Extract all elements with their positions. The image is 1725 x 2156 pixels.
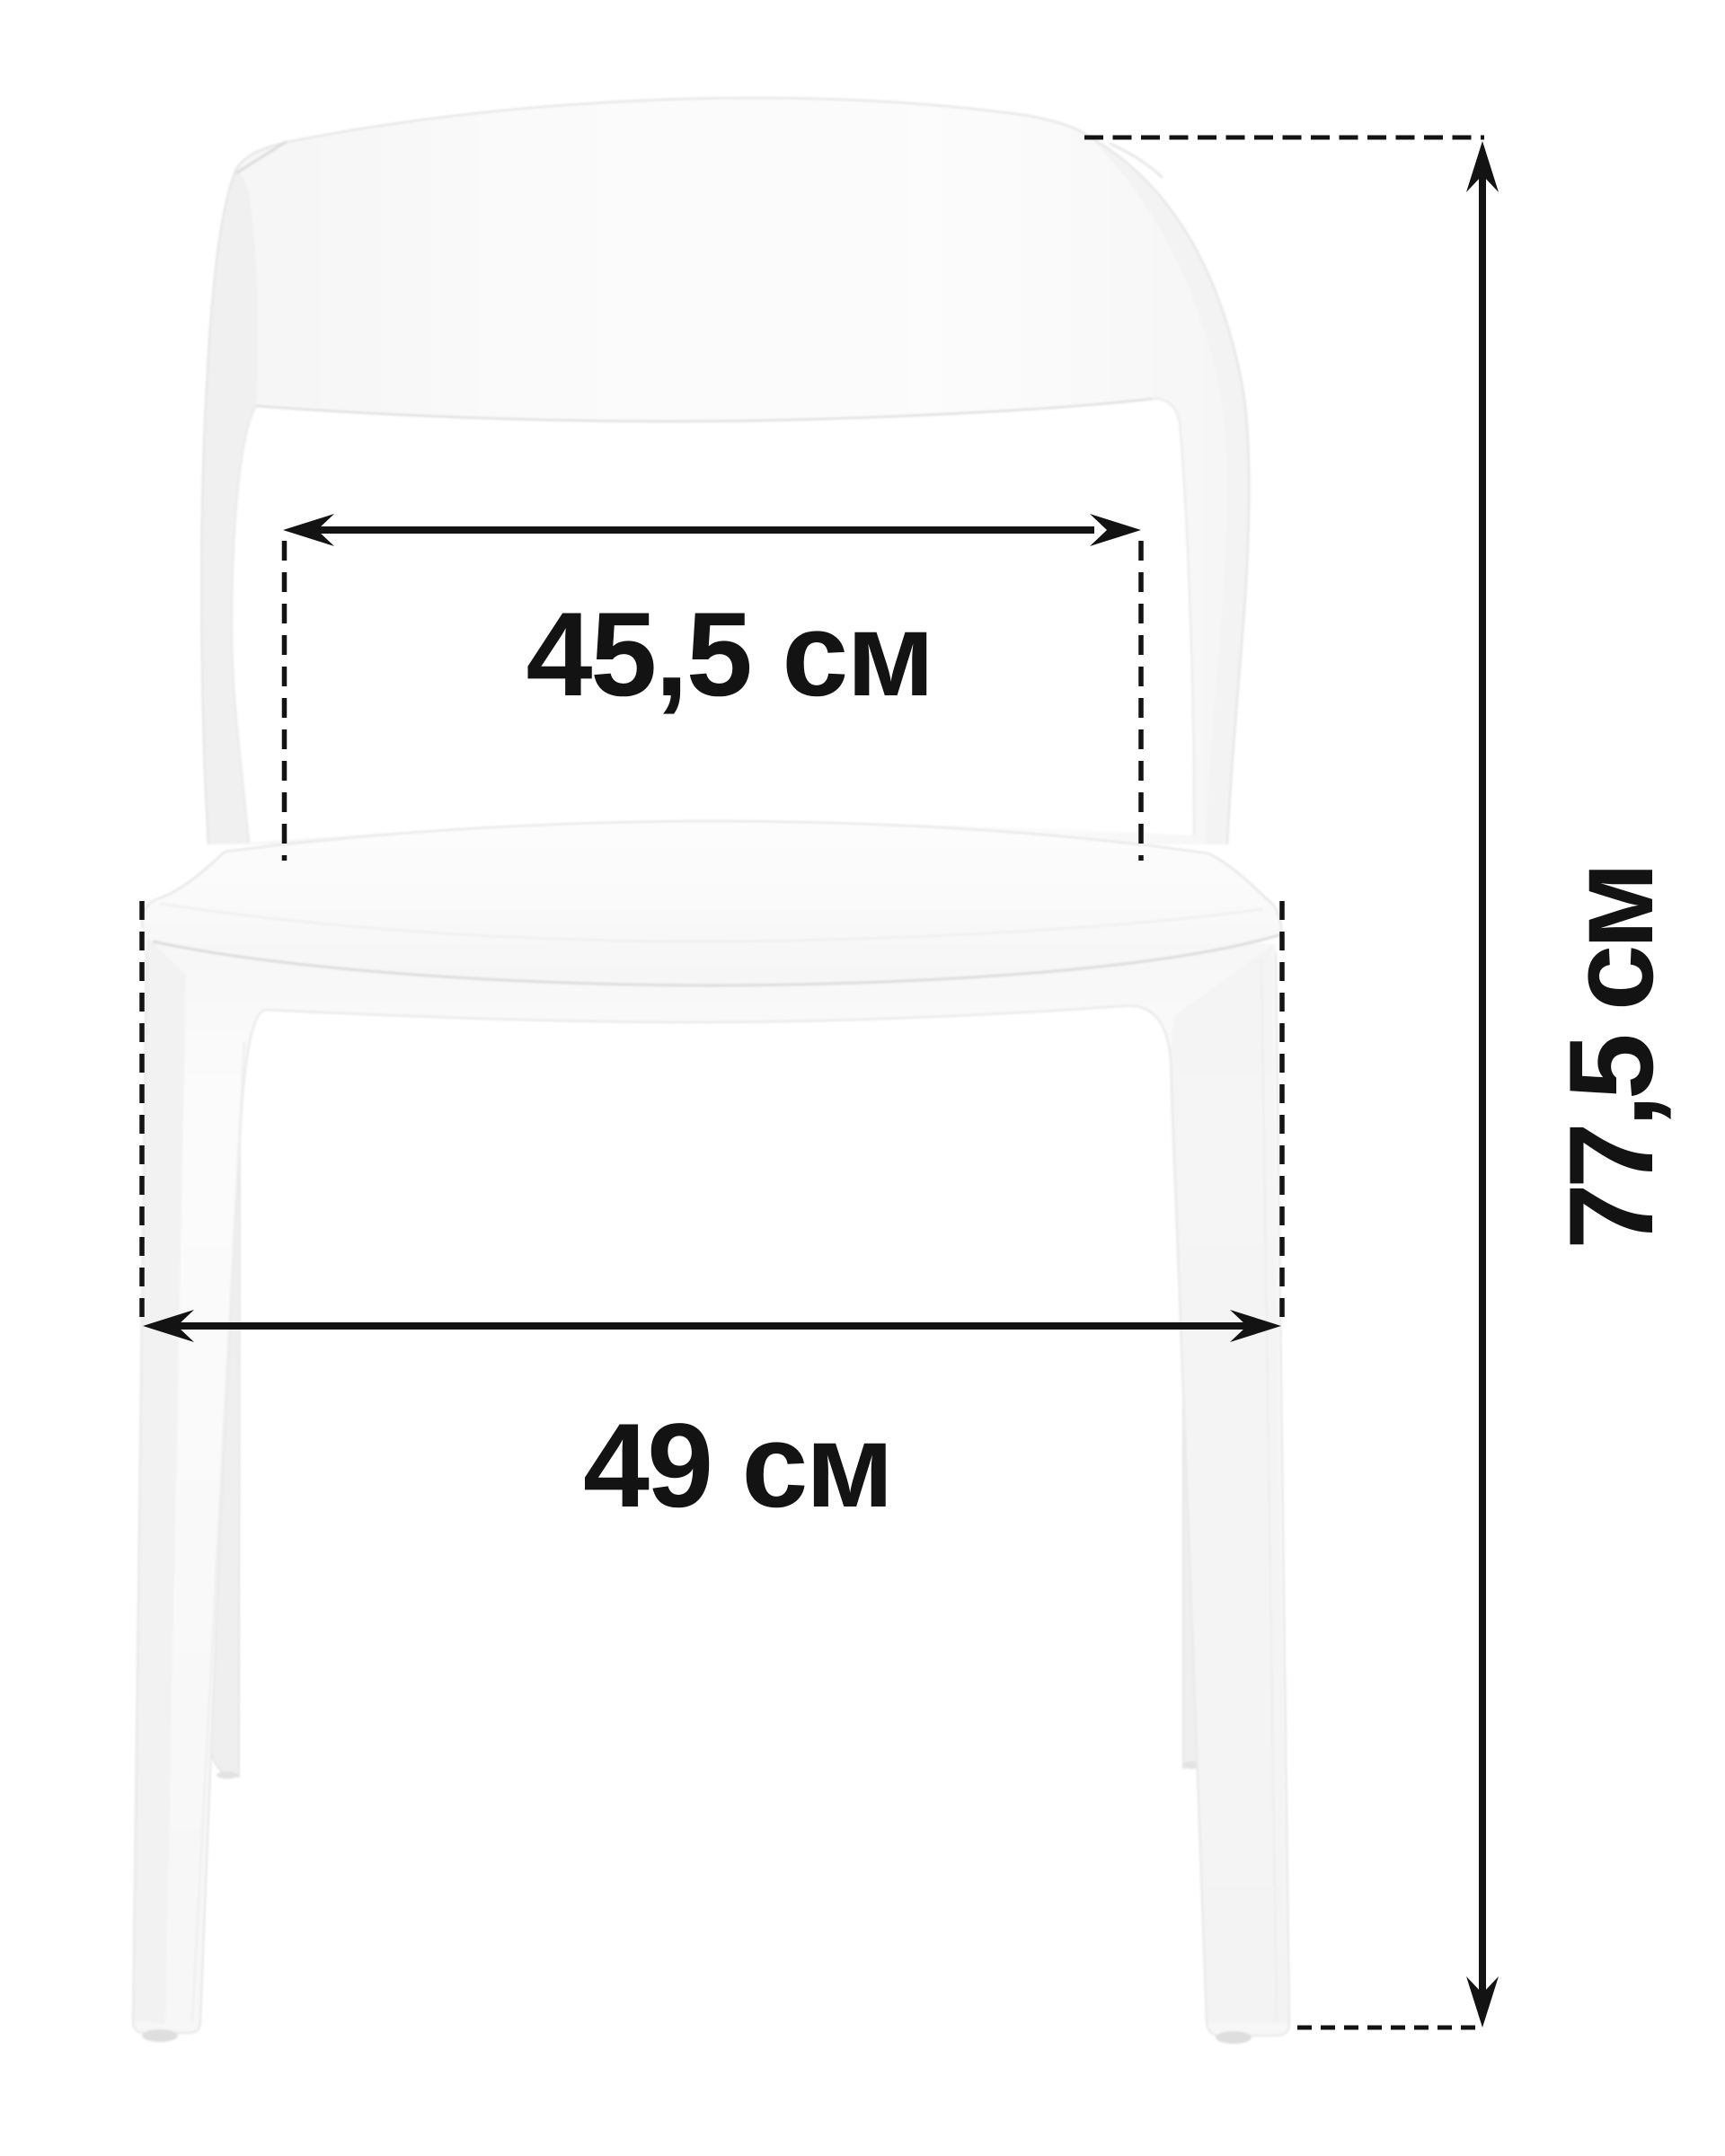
svg-text:49 см: 49 см bbox=[583, 1400, 894, 1533]
svg-text:45,5 см: 45,5 см bbox=[526, 588, 935, 721]
svg-text:77,5 см: 77,5 см bbox=[1545, 862, 1678, 1250]
